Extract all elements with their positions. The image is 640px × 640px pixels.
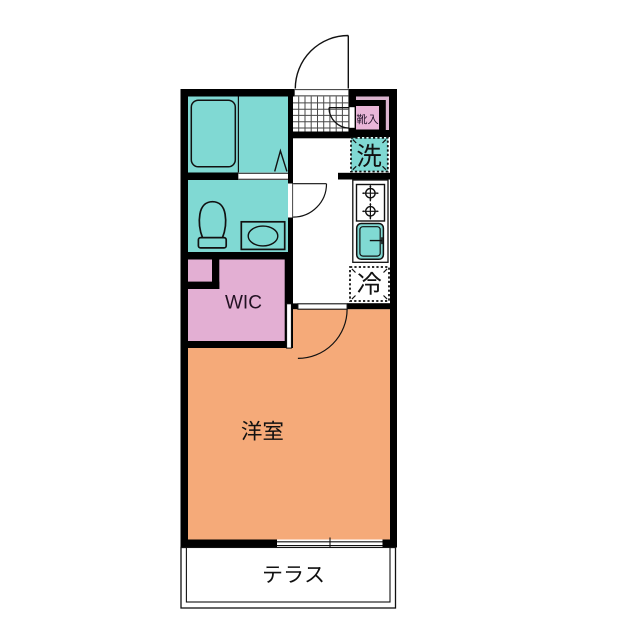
svg-text:WIC: WIC bbox=[225, 293, 262, 314]
